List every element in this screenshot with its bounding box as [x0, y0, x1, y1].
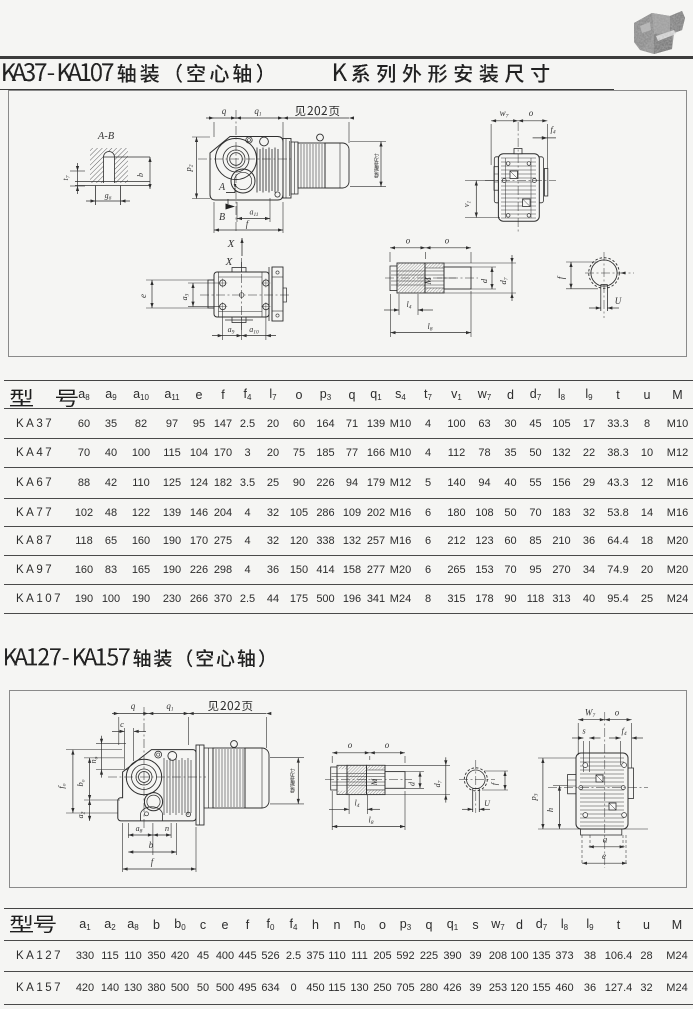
svg-text:l4: l4 [355, 799, 360, 810]
svg-text:B: B [219, 212, 225, 223]
svg-text:o: o [385, 740, 390, 750]
svg-text:X: X [227, 238, 236, 250]
svg-text:f: f [489, 781, 499, 785]
svg-text:f4: f4 [550, 124, 555, 136]
svg-text:U: U [615, 296, 622, 306]
svg-text:f4: f4 [621, 726, 626, 738]
svg-text:d: d [408, 781, 417, 786]
svg-text:t7: t7 [61, 175, 72, 180]
svg-text:a11: a11 [249, 208, 258, 219]
svg-text:s: s [582, 726, 586, 736]
svg-text:a8: a8 [136, 824, 143, 835]
svg-text:fo: fo [56, 783, 68, 788]
svg-text:g6: g6 [105, 191, 112, 202]
svg-text:f: f [151, 857, 155, 867]
svg-text:q1: q1 [254, 106, 262, 118]
svg-text:o: o [348, 740, 353, 750]
svg-text:f: f [246, 219, 250, 229]
svg-text:d: d [479, 278, 489, 283]
svg-text:h: h [545, 808, 555, 812]
svg-text:A: A [218, 182, 226, 193]
svg-text:b: b [149, 840, 154, 850]
svg-text:q: q [131, 701, 136, 711]
svg-text:a: a [603, 835, 608, 845]
svg-text:W7: W7 [585, 708, 596, 720]
svg-text:q1: q1 [166, 701, 174, 713]
svg-text:bo: bo [75, 779, 87, 786]
svg-text:c: c [120, 719, 124, 729]
svg-text:n: n [165, 823, 169, 833]
svg-text:l8: l8 [369, 816, 374, 827]
svg-text:M: M [370, 777, 379, 786]
svg-text:w7: w7 [500, 108, 509, 120]
svg-text:q: q [222, 106, 227, 116]
svg-text:p2: p2 [183, 164, 195, 172]
svg-text:f: f [556, 275, 566, 279]
svg-text:l4: l4 [407, 300, 412, 311]
svg-text:b: b [136, 173, 145, 177]
svg-text:M: M [423, 277, 433, 286]
svg-text:v1: v1 [461, 200, 473, 207]
svg-text:e: e [138, 294, 148, 298]
svg-text:p3: p3 [528, 793, 540, 801]
svg-text:o: o [445, 236, 450, 246]
svg-text:l8: l8 [428, 322, 433, 333]
svg-text:X: X [225, 256, 234, 268]
svg-text:o: o [406, 236, 411, 246]
svg-text:no: no [89, 756, 100, 763]
svg-text:a2: a2 [76, 811, 87, 818]
svg-text:a9: a9 [228, 325, 235, 336]
svg-text:a3: a3 [180, 293, 191, 300]
svg-text:o: o [529, 108, 534, 118]
svg-text:A-B: A-B [97, 131, 115, 142]
svg-text:a10: a10 [249, 325, 259, 336]
svg-text:e: e [602, 851, 606, 861]
svg-text:o: o [615, 708, 620, 718]
svg-text:U: U [484, 799, 491, 808]
svg-text:d7: d7 [433, 780, 444, 787]
svg-text:d7: d7 [498, 277, 510, 284]
